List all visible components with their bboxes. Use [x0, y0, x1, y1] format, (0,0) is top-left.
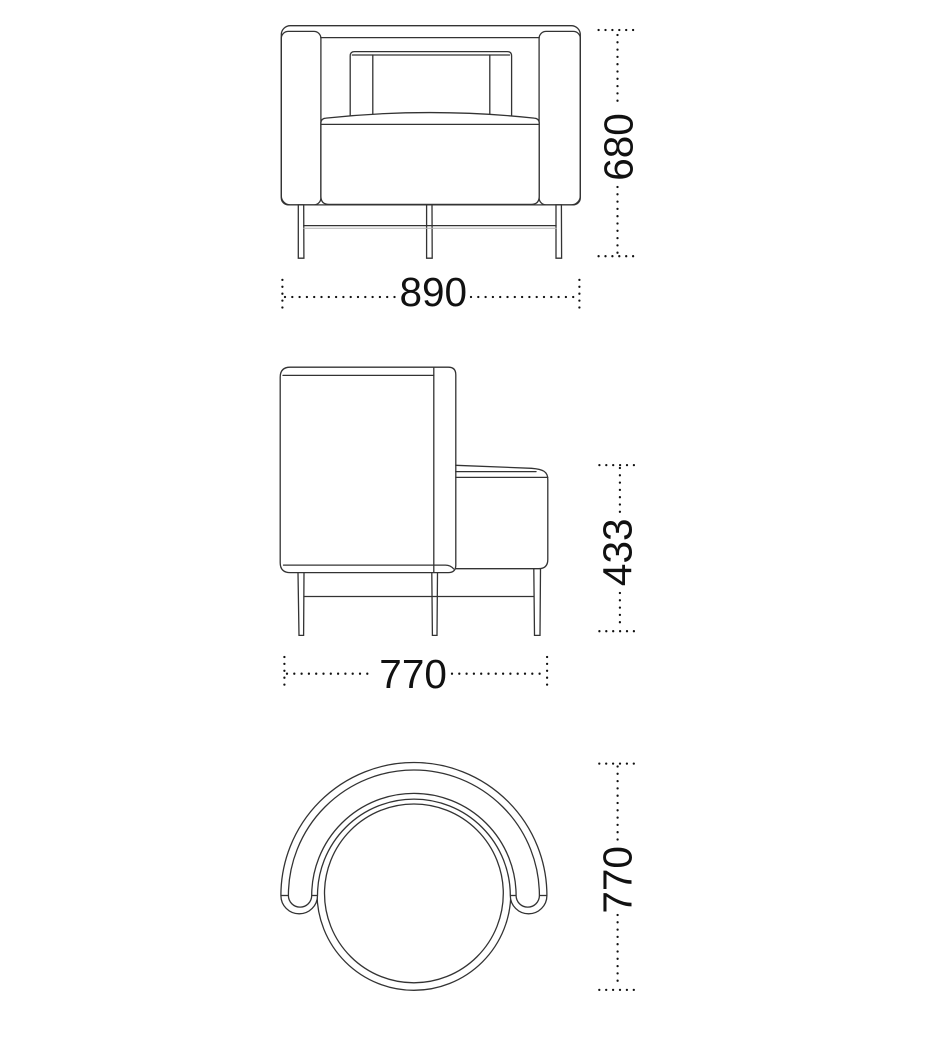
svg-text:770: 770 — [379, 651, 447, 697]
svg-text:680: 680 — [596, 113, 642, 181]
svg-text:433: 433 — [594, 519, 640, 587]
svg-text:770: 770 — [594, 846, 640, 914]
svg-text:890: 890 — [399, 269, 467, 315]
